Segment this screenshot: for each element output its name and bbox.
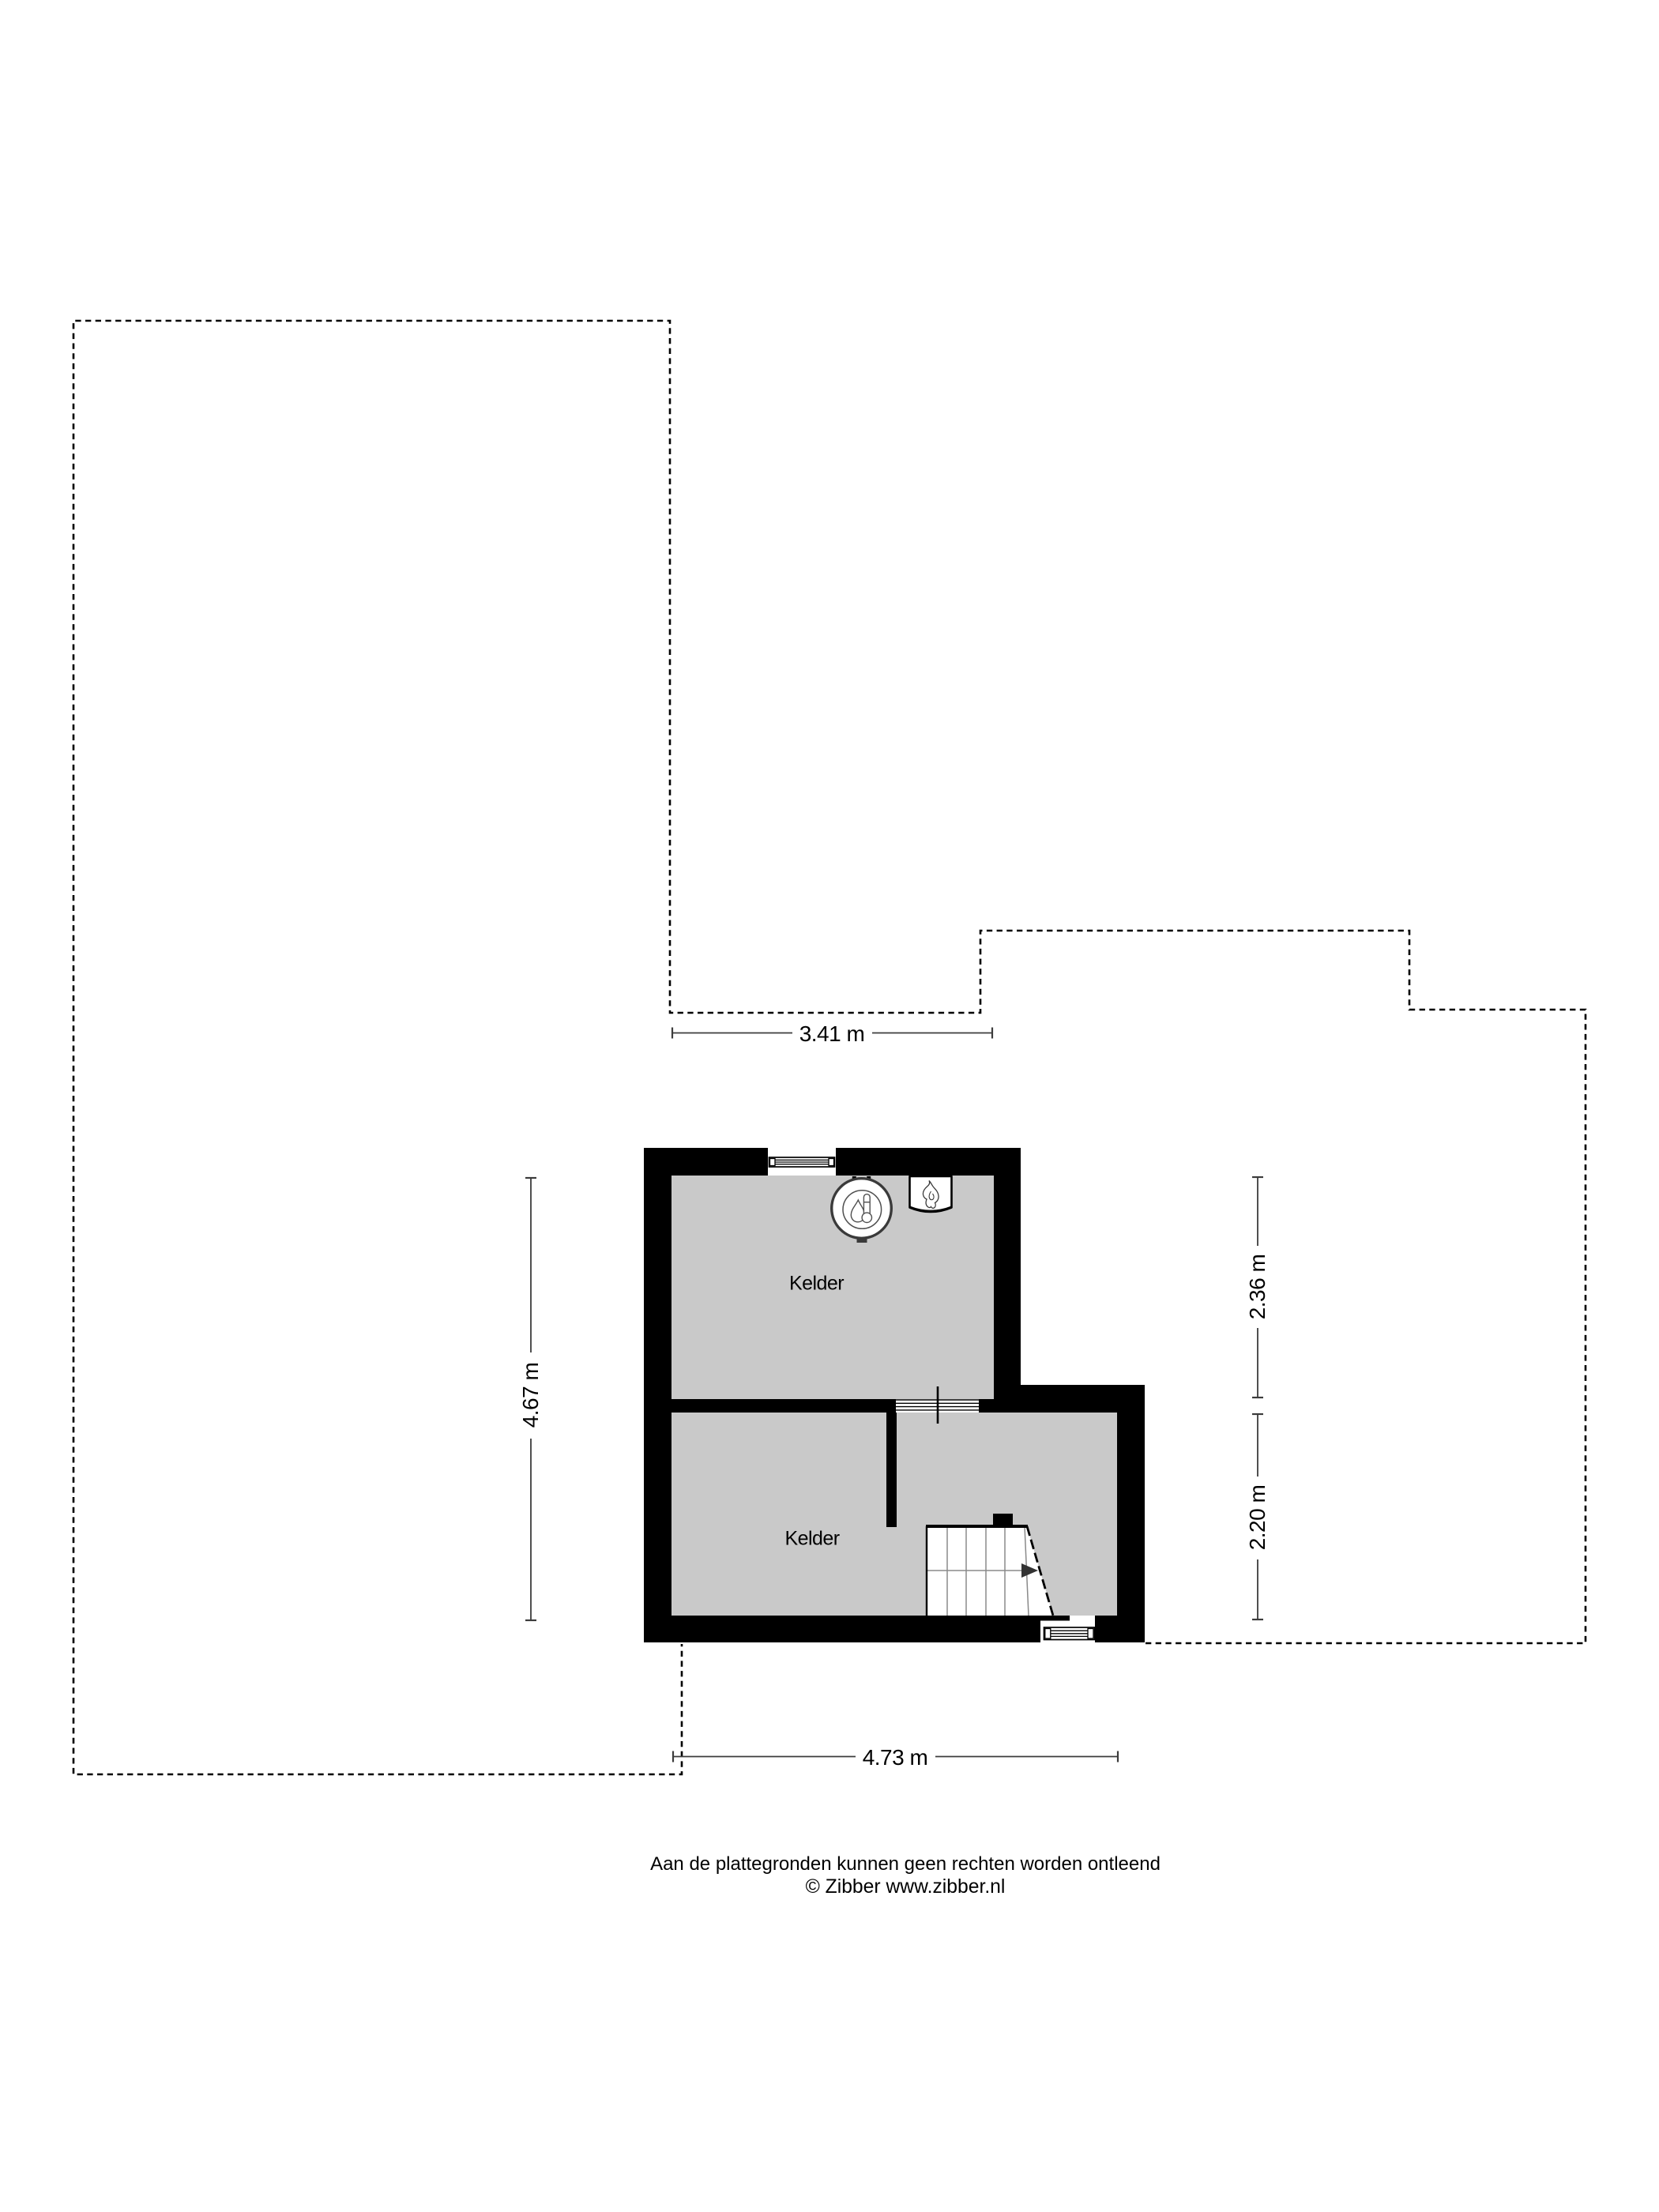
svg-text:4.73 m: 4.73 m (863, 1745, 928, 1770)
svg-text:Kelder: Kelder (785, 1528, 840, 1550)
svg-text:© Zibber www.zibber.nl: © Zibber www.zibber.nl (806, 1876, 1006, 1898)
svg-text:2.36 m: 2.36 m (1245, 1255, 1270, 1320)
svg-text:3.41 m: 3.41 m (799, 1021, 865, 1046)
svg-text:4.67 m: 4.67 m (518, 1363, 543, 1428)
svg-text:Aan de plattegronden kunnen ge: Aan de plattegronden kunnen geen rechten… (650, 1853, 1161, 1875)
svg-text:2.20 m: 2.20 m (1245, 1485, 1270, 1551)
svg-text:Kelder: Kelder (789, 1273, 844, 1295)
